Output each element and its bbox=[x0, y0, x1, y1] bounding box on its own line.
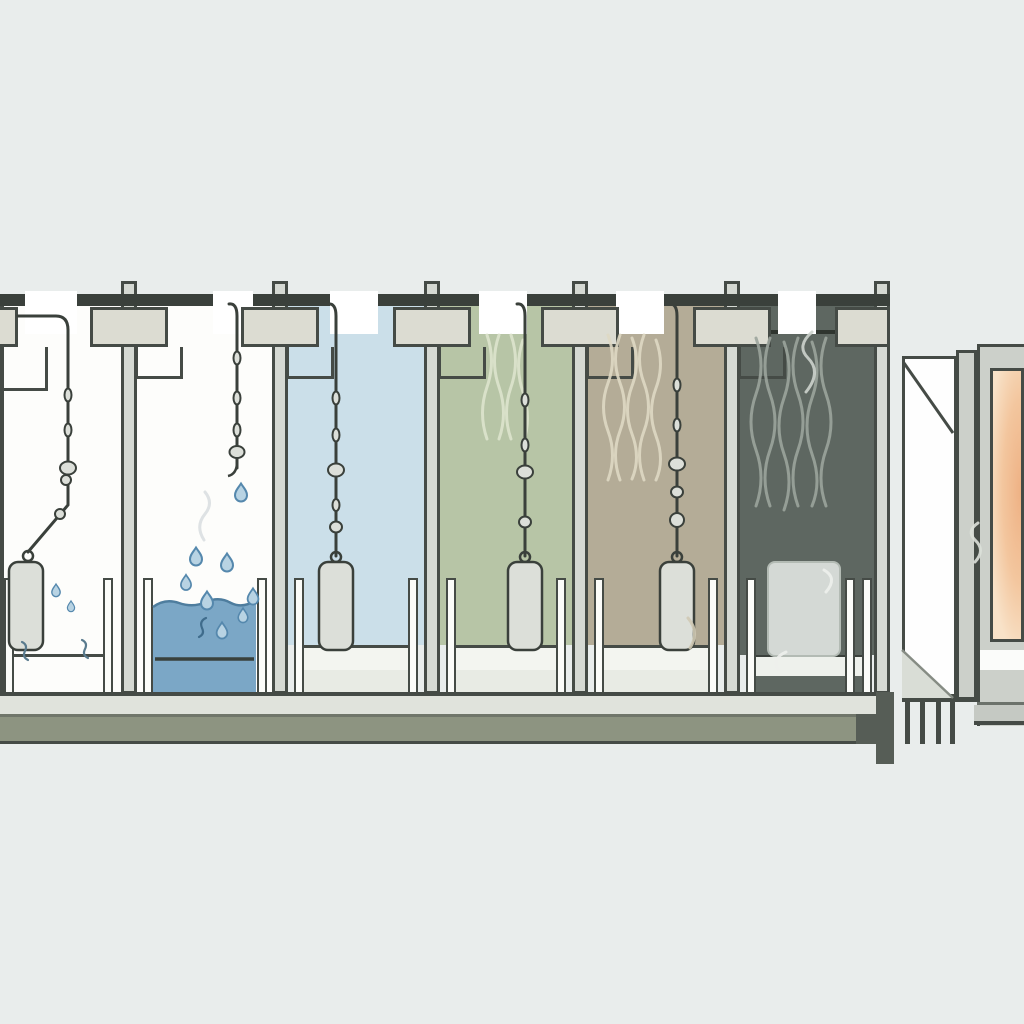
station-3-hanger bbox=[319, 304, 353, 650]
station-6-steam bbox=[751, 332, 831, 510]
hanger-chain bbox=[229, 304, 237, 468]
water-droplet bbox=[235, 484, 247, 502]
dip-line-scene bbox=[0, 0, 1024, 1024]
steam-line bbox=[483, 335, 492, 439]
steam-line bbox=[821, 338, 831, 506]
chain-link bbox=[234, 424, 241, 437]
water-droplet bbox=[221, 554, 233, 572]
chain-ball bbox=[670, 513, 684, 527]
station-1-hanger bbox=[9, 316, 76, 650]
chain-link bbox=[234, 392, 241, 405]
chain-link bbox=[65, 389, 72, 402]
suspended-part bbox=[9, 562, 43, 650]
chain-link bbox=[333, 392, 340, 405]
chain-link bbox=[522, 394, 529, 407]
steam-line bbox=[604, 335, 613, 480]
water-droplet bbox=[248, 588, 259, 604]
chain-link bbox=[674, 419, 681, 432]
steam-line bbox=[616, 335, 625, 480]
steam-line bbox=[628, 338, 637, 479]
chain-link bbox=[333, 499, 340, 511]
chain-shackle bbox=[328, 464, 344, 477]
water-droplet bbox=[201, 592, 213, 610]
squiggle-mark bbox=[82, 640, 88, 658]
hanger-arm bbox=[18, 316, 68, 330]
chain-shackle bbox=[55, 509, 65, 519]
chain-link bbox=[674, 379, 681, 392]
suspended-part bbox=[660, 562, 694, 650]
chain-shackle bbox=[669, 458, 685, 471]
steam-line bbox=[765, 338, 775, 506]
chain-shackle bbox=[519, 517, 531, 528]
oven-entry-details bbox=[902, 363, 981, 698]
chain-shackle bbox=[671, 487, 683, 498]
line-art-overlay bbox=[0, 0, 1024, 1024]
steam-line bbox=[751, 338, 761, 506]
steam-line bbox=[793, 338, 803, 506]
steam-line bbox=[640, 335, 649, 480]
chain-link bbox=[522, 439, 529, 452]
water-droplet bbox=[52, 584, 60, 597]
chain-link bbox=[65, 424, 72, 437]
station-4-steam bbox=[483, 335, 528, 444]
chain-shackle bbox=[517, 466, 533, 479]
steam-line bbox=[495, 335, 504, 439]
oven-steam-curl bbox=[971, 523, 980, 562]
suspended-part bbox=[508, 562, 542, 650]
station-4-hanger bbox=[508, 304, 542, 650]
mist-curl bbox=[200, 492, 210, 540]
station-5-hanger bbox=[660, 304, 695, 650]
chain-shackle bbox=[61, 475, 71, 485]
water-droplet bbox=[190, 548, 202, 566]
steam-line bbox=[507, 335, 516, 439]
station-2-hanger bbox=[200, 304, 245, 540]
suspended-part bbox=[319, 562, 353, 650]
chain-shackle bbox=[330, 522, 342, 533]
entry-diagonal-brace bbox=[904, 363, 953, 433]
steam-line bbox=[652, 340, 661, 480]
water-droplet bbox=[181, 575, 191, 590]
water-droplet bbox=[67, 601, 74, 612]
chain-link bbox=[333, 429, 340, 442]
chain-link bbox=[234, 352, 241, 365]
station-5-steam bbox=[604, 335, 661, 480]
station-6-bin bbox=[768, 562, 840, 670]
steam-line bbox=[779, 342, 789, 510]
chain-shackle bbox=[60, 462, 76, 475]
chain-shackle bbox=[230, 446, 245, 458]
